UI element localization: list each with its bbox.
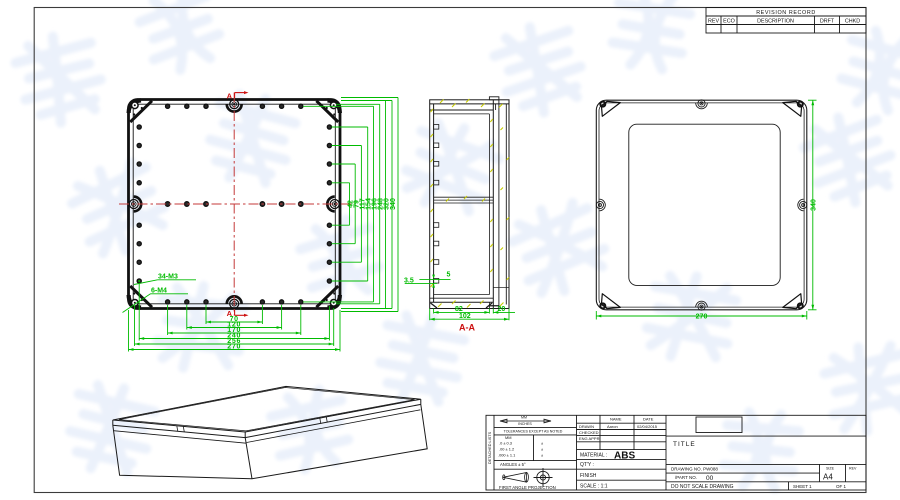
svg-text:INCHES: INCHES (518, 422, 532, 426)
svg-text:ECO: ECO (723, 19, 735, 25)
svg-text:20: 20 (498, 306, 506, 313)
svg-text:MM: MM (505, 435, 511, 440)
svg-text:DRFT: DRFT (820, 19, 835, 25)
svg-text:340: 340 (811, 199, 818, 211)
svg-text:CHKD: CHKD (845, 19, 860, 25)
svg-text:CHECKED: CHECKED (579, 430, 599, 435)
svg-text:DRAWING NO. PW088: DRAWING NO. PW088 (671, 467, 718, 472)
svg-text:FINISH: FINISH (580, 473, 597, 479)
svg-text:A-A: A-A (459, 323, 475, 333)
svg-text:TOLERANCES EXCEPT AS NOTED: TOLERANCES EXCEPT AS NOTED (504, 430, 563, 434)
svg-text:5: 5 (447, 272, 451, 279)
svg-text:.00 ± 1.2: .00 ± 1.2 (499, 447, 514, 452)
svg-text:SIZE: SIZE (826, 467, 835, 471)
svg-text:MATERIAL :: MATERIAL : (580, 453, 607, 459)
svg-text:02/04/2015: 02/04/2015 (637, 424, 658, 429)
svg-text:QT'Y :: QT'Y : (580, 462, 594, 468)
svg-text:DETACHED LISTS: DETACHED LISTS (488, 431, 492, 464)
svg-text:DRAWN: DRAWN (579, 424, 594, 429)
svg-text:270: 270 (227, 344, 241, 351)
svg-text:Aaron: Aaron (607, 424, 618, 429)
svg-text:ANGLES ± 5°: ANGLES ± 5° (500, 462, 526, 467)
svg-text:REV: REV (708, 19, 719, 25)
svg-text:ENG APPR: ENG APPR (579, 436, 600, 441)
svg-text:.000 ± 1.1: .000 ± 1.1 (498, 453, 515, 458)
svg-text:REVISION RECORD: REVISION RECORD (756, 10, 816, 16)
svg-text:DO NOT SCALE DRAWING: DO NOT SCALE DRAWING (671, 484, 734, 490)
svg-text:102: 102 (459, 313, 471, 320)
svg-text:FIRST ANGLE PROJECTION: FIRST ANGLE PROJECTION (499, 485, 556, 490)
svg-text:TITLE: TITLE (673, 441, 696, 448)
svg-text:/PART NO.: /PART NO. (675, 475, 697, 480)
svg-text:.0 ± 0.3: .0 ± 0.3 (499, 440, 512, 445)
svg-text:A4: A4 (823, 473, 833, 482)
svg-text:DESCRIPTION: DESCRIPTION (757, 19, 794, 25)
svg-text:340: 340 (390, 198, 397, 210)
svg-text:A: A (227, 91, 233, 100)
svg-text:MM: MM (521, 416, 527, 420)
svg-text:00: 00 (706, 475, 714, 482)
svg-text:REV: REV (849, 467, 857, 471)
svg-text:SHEET 1: SHEET 1 (793, 484, 812, 489)
svg-text:DATE: DATE (643, 417, 654, 422)
svg-text:SCALE : 1:1: SCALE : 1:1 (580, 484, 608, 490)
svg-text:OF 1: OF 1 (836, 484, 846, 489)
svg-text:270: 270 (696, 314, 708, 321)
svg-text:NAME: NAME (610, 417, 622, 422)
svg-text:ABS: ABS (614, 451, 635, 462)
